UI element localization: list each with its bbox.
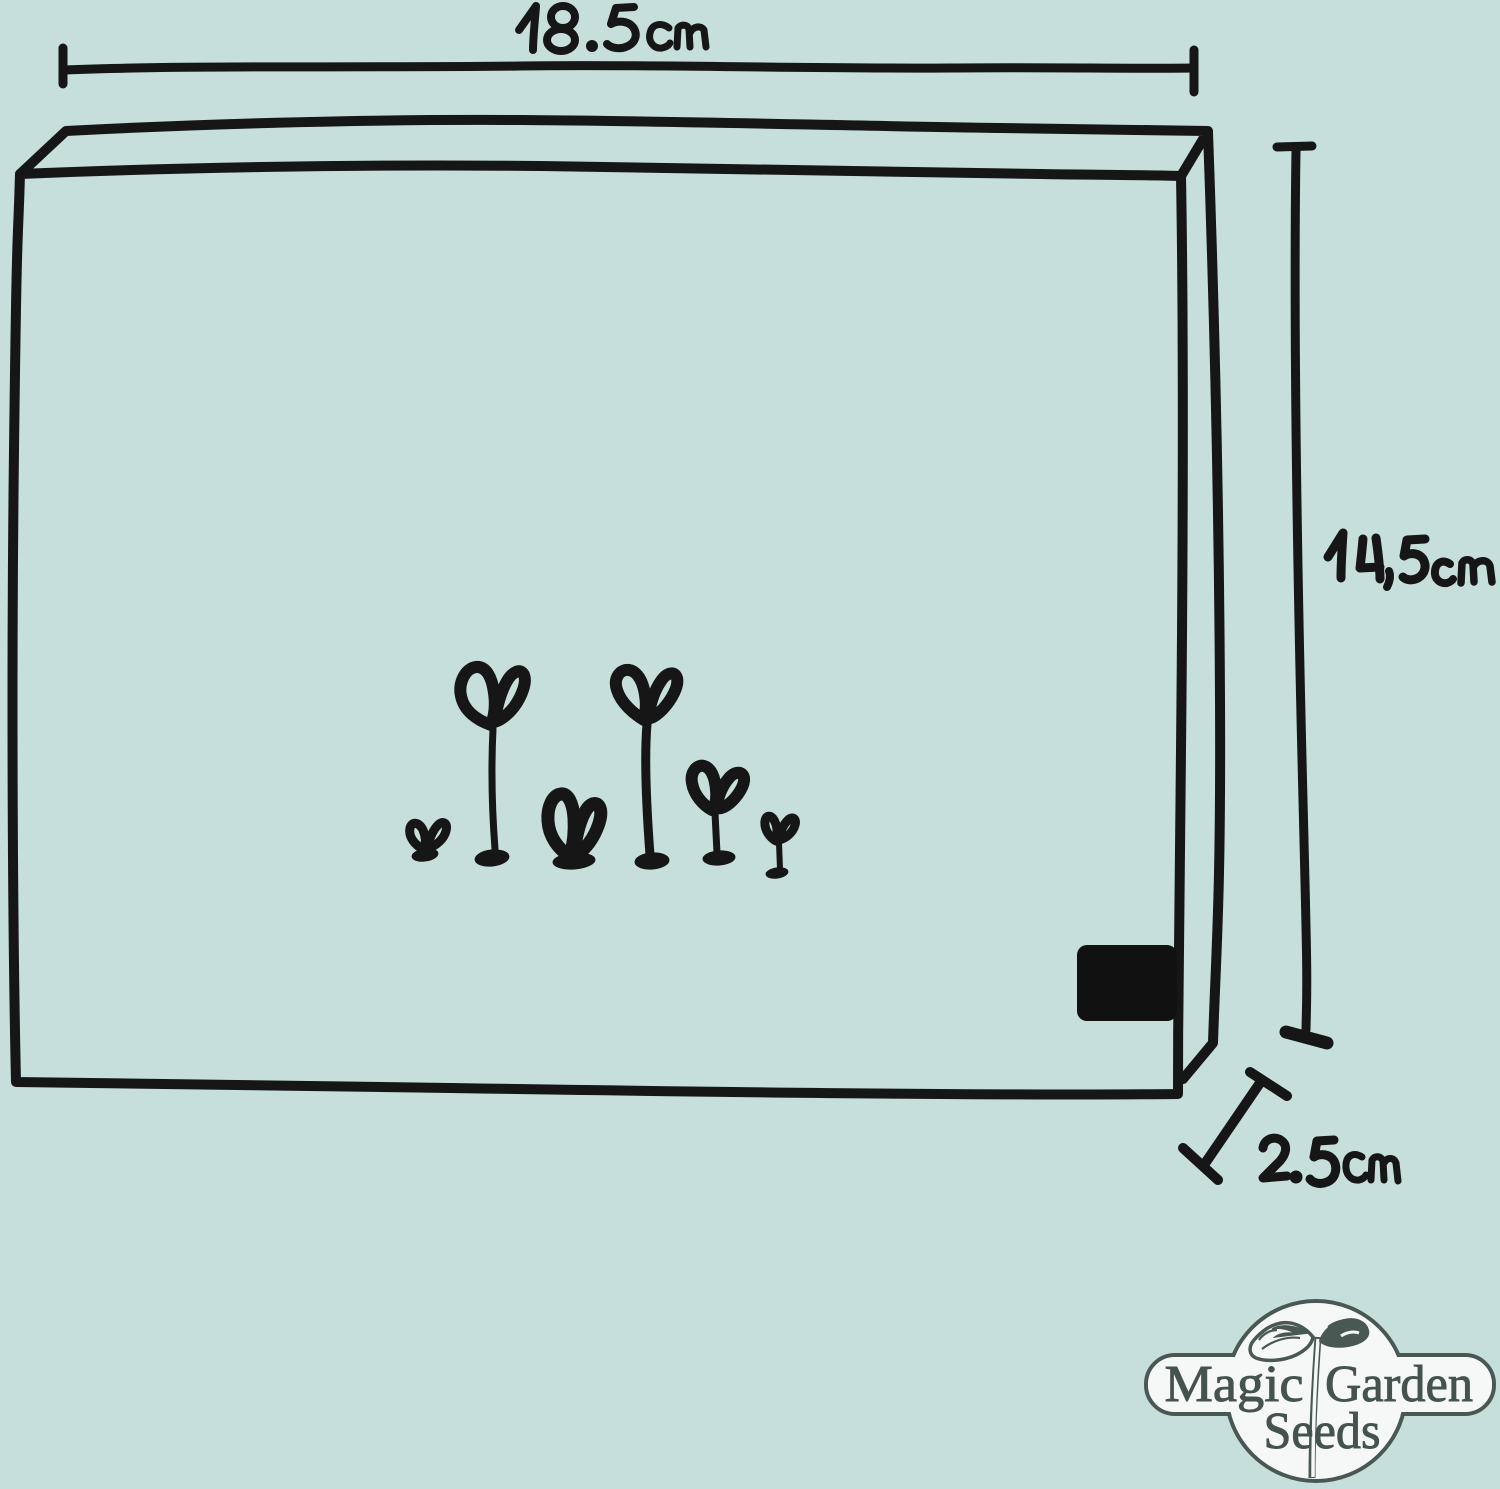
svg-text:Seeds: Seeds	[1264, 1403, 1381, 1460]
